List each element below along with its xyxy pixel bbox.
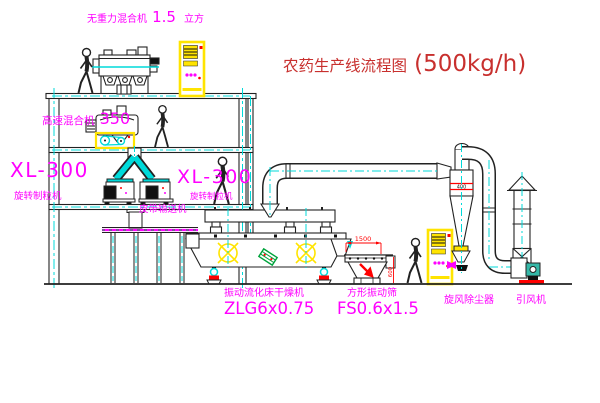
label-belt-conveyor: 皮带输送机 (139, 203, 187, 215)
title-text: 农药生产线流程图 (283, 57, 407, 75)
belt-conveyor (102, 210, 198, 284)
label-xl300-left-sub: 旋转制粒机 (14, 190, 62, 202)
gravity-mixer-name: 无重力混合机 (87, 12, 147, 25)
dim-height-text: 600 (388, 266, 394, 277)
mixer-discharge (117, 85, 131, 94)
label-fan: 引风机 (516, 293, 546, 306)
label-screen-name: 方形振动筛 (347, 286, 397, 299)
control-cabinet-ground (428, 230, 452, 284)
dryer-inlet (186, 234, 199, 248)
exhaust-duct (261, 163, 451, 217)
flow-diagram-canvas: 农药生产线流程图 (500kg/h) (0, 0, 600, 403)
spring-support-right (317, 267, 331, 284)
conveyor-legs (111, 233, 184, 283)
fluid-bed-dryer (186, 207, 353, 284)
dryer-rim (186, 233, 346, 239)
gravity-free-mixer (92, 47, 159, 94)
granulator-left (103, 179, 135, 205)
label-xl300-mid-sub: 旋转制粒机 (190, 191, 233, 202)
label-xl300-mid: XL-300 (177, 166, 252, 188)
spring-support-left (207, 267, 221, 284)
gravity-mixer-size: 1.5 (152, 8, 176, 26)
dimension-1500 (346, 242, 381, 255)
label-xl300-left: XL-300 (10, 158, 89, 182)
dim-1500-text: 1500 (355, 235, 372, 243)
worker-ground (408, 239, 422, 284)
drawing-title: 农药生产线流程图 (500kg/h) (283, 51, 526, 77)
exhaust-stack (507, 172, 537, 270)
hs-mixer-name: 高速混合机 (42, 114, 95, 127)
label-dryer-model: ZLG6x0.75 (224, 299, 314, 318)
induced-draft-fan (511, 258, 544, 284)
granulator-right (139, 179, 173, 205)
label-cyclone: 旋风除尘器 (444, 293, 494, 306)
production-line-drawing: 农药生产线流程图 (500kg/h) (0, 0, 600, 403)
control-cabinet-top (180, 42, 204, 96)
mixer-paddles (103, 76, 147, 85)
gravity-mixer-unit: 立方 (184, 12, 204, 25)
title-capacity: (500kg/h) (414, 51, 526, 77)
worker-floor2 (155, 106, 168, 147)
worker-top-floor (79, 49, 93, 94)
label-dryer-name: 振动流化床干燥机 (224, 286, 304, 299)
label-screen-model: FS0.6x1.5 (337, 299, 419, 318)
hs-mixer-size: 350 (100, 109, 131, 128)
label-gravity-mixer: 无重力混合机 1.5 立方 (87, 7, 204, 26)
